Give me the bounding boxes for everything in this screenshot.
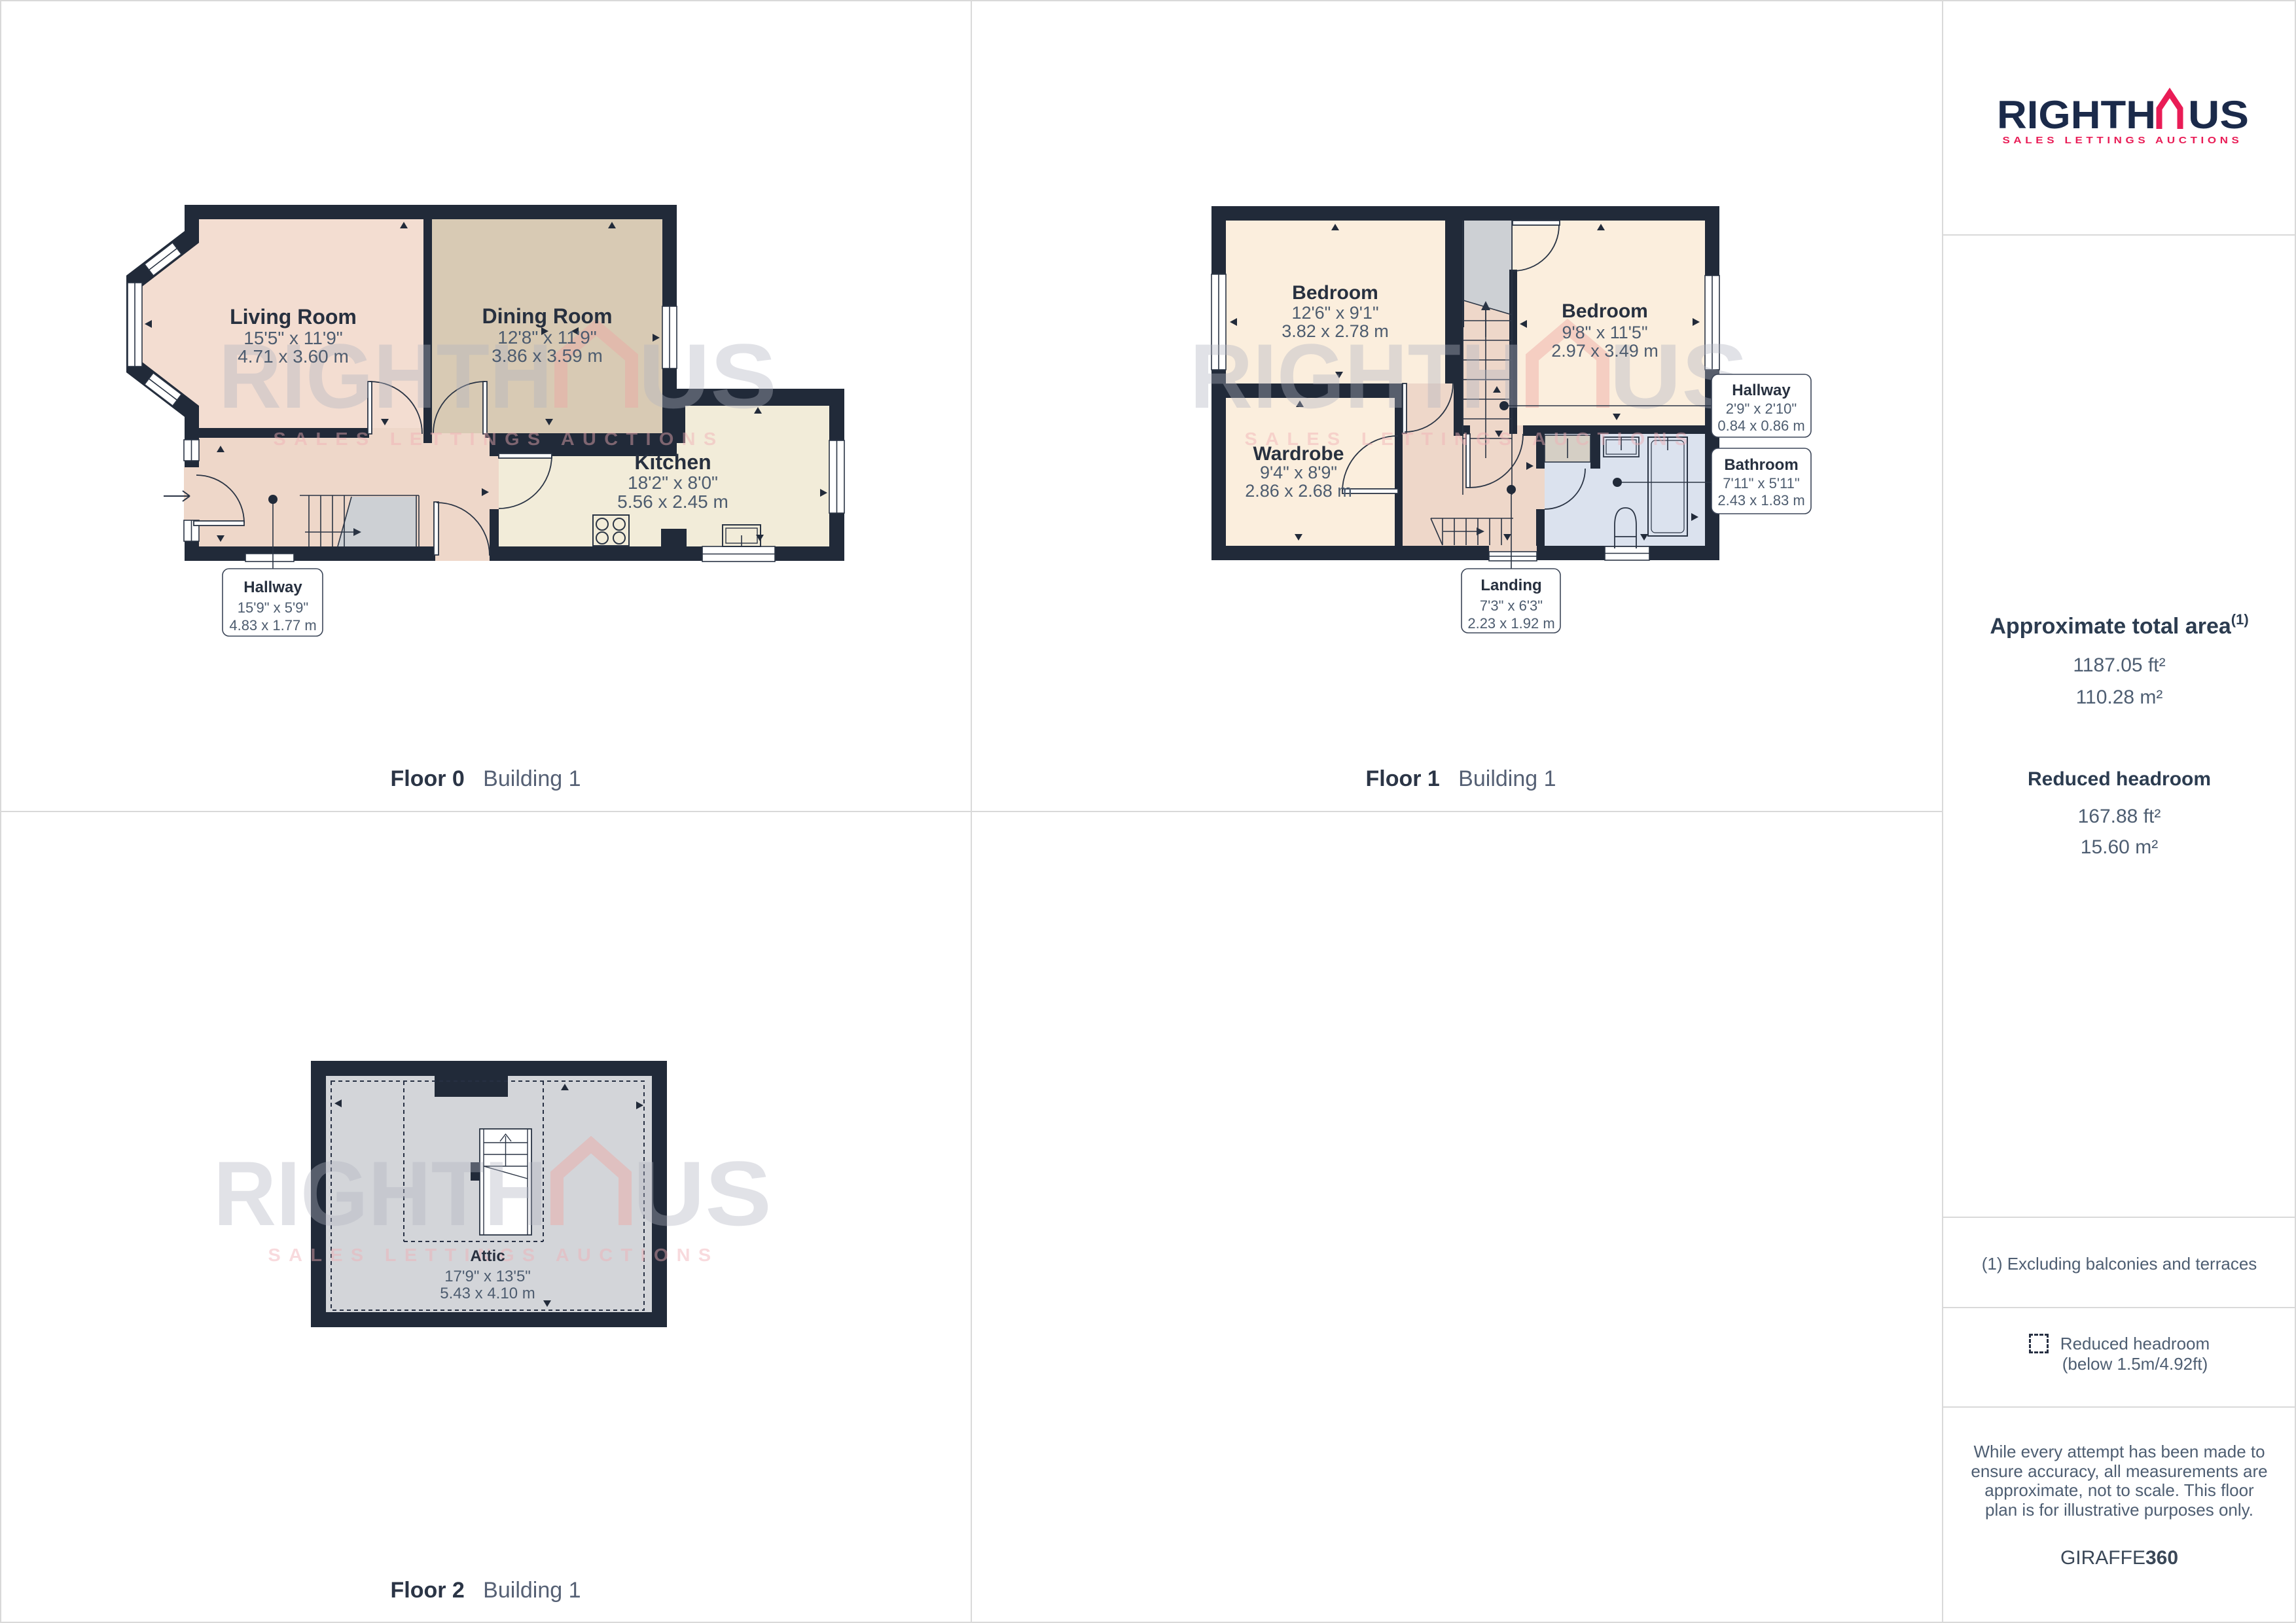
svg-text:2.86 x 2.68 m: 2.86 x 2.68 m [1245, 481, 1352, 501]
svg-text:3.82 x 2.78 m: 3.82 x 2.78 m [1282, 321, 1389, 341]
svg-text:17'9" x 13'5": 17'9" x 13'5" [444, 1268, 531, 1285]
svg-text:Wardrobe: Wardrobe [1253, 443, 1344, 465]
svg-text:4.83 x 1.77 m: 4.83 x 1.77 m [229, 617, 316, 633]
svg-text:SALES LETTINGS AUCTIONS: SALES LETTINGS AUCTIONS [274, 429, 725, 449]
svg-text:7'3" x 6'3": 7'3" x 6'3" [1480, 597, 1543, 614]
svg-text:Landing: Landing [1480, 577, 1541, 594]
svg-text:5.43 x 4.10 m: 5.43 x 4.10 m [440, 1285, 535, 1302]
svg-text:3.86 x 3.59 m: 3.86 x 3.59 m [492, 346, 603, 366]
svg-text:Hallway: Hallway [243, 579, 302, 596]
svg-text:0.84 x 0.86 m: 0.84 x 0.86 m [1717, 418, 1804, 434]
svg-text:2.43 x 1.83 m: 2.43 x 1.83 m [1717, 492, 1804, 508]
svg-text:Attic: Attic [470, 1247, 505, 1265]
svg-text:Dining Room: Dining Room [482, 304, 612, 328]
svg-text:US: US [638, 325, 777, 427]
svg-text:15'5" x 11'9": 15'5" x 11'9" [243, 328, 342, 348]
svg-text:5.56 x 2.45 m: 5.56 x 2.45 m [617, 491, 728, 512]
svg-text:2'9" x 2'10": 2'9" x 2'10" [1726, 401, 1797, 417]
svg-text:Hallway: Hallway [1732, 382, 1791, 399]
svg-text:Bedroom: Bedroom [1562, 300, 1648, 322]
svg-text:Kitchen: Kitchen [634, 450, 711, 474]
svg-text:Living Room: Living Room [230, 305, 357, 329]
svg-text:2.23 x 1.92 m: 2.23 x 1.92 m [1467, 615, 1554, 632]
svg-text:12'8" x 11'9": 12'8" x 11'9" [497, 327, 596, 348]
svg-text:7'11" x 5'11": 7'11" x 5'11" [1723, 475, 1799, 491]
svg-text:US: US [633, 1142, 772, 1245]
svg-text:US: US [2188, 93, 2249, 137]
svg-text:9'4" x 8'9": 9'4" x 8'9" [1260, 463, 1337, 482]
svg-text:18'2" x 8'0": 18'2" x 8'0" [628, 473, 718, 493]
svg-text:9'8" x 11'5": 9'8" x 11'5" [1562, 323, 1647, 342]
svg-text:4.71 x 3.60 m: 4.71 x 3.60 m [238, 346, 349, 366]
svg-text:RIGHTH: RIGHTH [213, 1142, 547, 1245]
svg-text:SALES LETTINGS AUCTIONS: SALES LETTINGS AUCTIONS [2003, 135, 2243, 146]
svg-text:2.97 x 3.49 m: 2.97 x 3.49 m [1551, 341, 1659, 361]
svg-text:RIGHTH: RIGHTH [1997, 93, 2156, 137]
svg-text:15'9" x 5'9": 15'9" x 5'9" [238, 599, 308, 616]
svg-text:Bathroom: Bathroom [1724, 456, 1798, 474]
svg-text:12'6" x 9'1": 12'6" x 9'1" [1291, 303, 1378, 323]
svg-text:Bedroom: Bedroom [1292, 282, 1378, 304]
